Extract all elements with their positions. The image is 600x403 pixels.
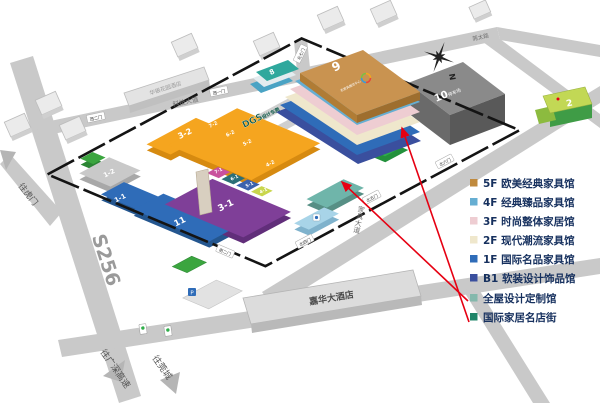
building-2: 2 <box>535 87 592 127</box>
legend-item: 1F 国际名品家具馆 <box>470 253 575 266</box>
legend-swatch-street <box>470 313 478 321</box>
bus-stop-icon <box>139 324 147 335</box>
legend-label-3f: 3F 时尚整体家居馆 <box>483 215 575 228</box>
gate-north4: 北四门 <box>295 234 315 250</box>
building-8-stack <box>250 60 299 93</box>
legend-item: 5F 欧美经典家具馆 <box>470 177 575 190</box>
legend-label-street: 国际家居名店街 <box>483 311 557 324</box>
gray-cube <box>171 33 199 61</box>
legend-item: 3F 时尚整体家居馆 <box>470 215 575 228</box>
legend-label-5f: 5F 欧美经典家具馆 <box>483 177 575 190</box>
legend: 5F 欧美经典家具馆 4F 经典臻品家具馆 3F 时尚整体家居馆 2F 现代潮流… <box>470 177 576 324</box>
venue-map-page: 华银花园酒店 嘉华大酒店 <box>0 0 600 403</box>
gray-cube <box>469 0 492 23</box>
jiahua-hotel-building: 嘉华大酒店 <box>243 270 422 333</box>
road-bottom-right-branch <box>463 288 550 403</box>
station-icon <box>313 214 320 221</box>
legend-swatch-3f <box>470 217 478 225</box>
legend-swatch-1f <box>470 255 478 263</box>
legend-item: 4F 经典臻品家具馆 <box>470 196 575 209</box>
legend-swatch-custom <box>470 294 478 302</box>
bus-stop-icon <box>164 326 172 337</box>
gray-cube <box>317 6 345 34</box>
parking-icon: P <box>188 288 196 297</box>
legend-label-4f: 4F 经典臻品家具馆 <box>483 196 575 209</box>
legend-label-2f: 2F 现代潮流家具馆 <box>483 234 575 247</box>
building-2-red-dot <box>557 98 560 101</box>
legend-label-custom: 全屋设计定制馆 <box>482 292 557 305</box>
legend-label-1f: 1F 国际名品家具馆 <box>483 253 575 266</box>
to-guancheng-label: 往莞城 <box>150 353 175 382</box>
legend-item: B1 软装设计饰品馆 <box>470 272 576 285</box>
legend-item: 国际家居名店街 <box>470 311 557 324</box>
venue-map: 华银花园酒店 嘉华大酒店 <box>0 0 600 403</box>
legend-item: 全屋设计定制馆 <box>470 292 557 305</box>
green-building-south <box>172 256 206 273</box>
legend-swatch-b1 <box>470 274 478 282</box>
gray-cube <box>370 0 398 28</box>
gate-south2: 南二门 <box>215 244 235 258</box>
legend-item: 2F 现代潮流家具馆 <box>470 234 575 247</box>
legend-swatch-5f <box>470 179 478 187</box>
legend-label-b1: B1 软装设计饰品馆 <box>483 272 576 285</box>
legend-swatch-2f <box>470 236 478 244</box>
legend-swatch-4f <box>470 198 478 206</box>
